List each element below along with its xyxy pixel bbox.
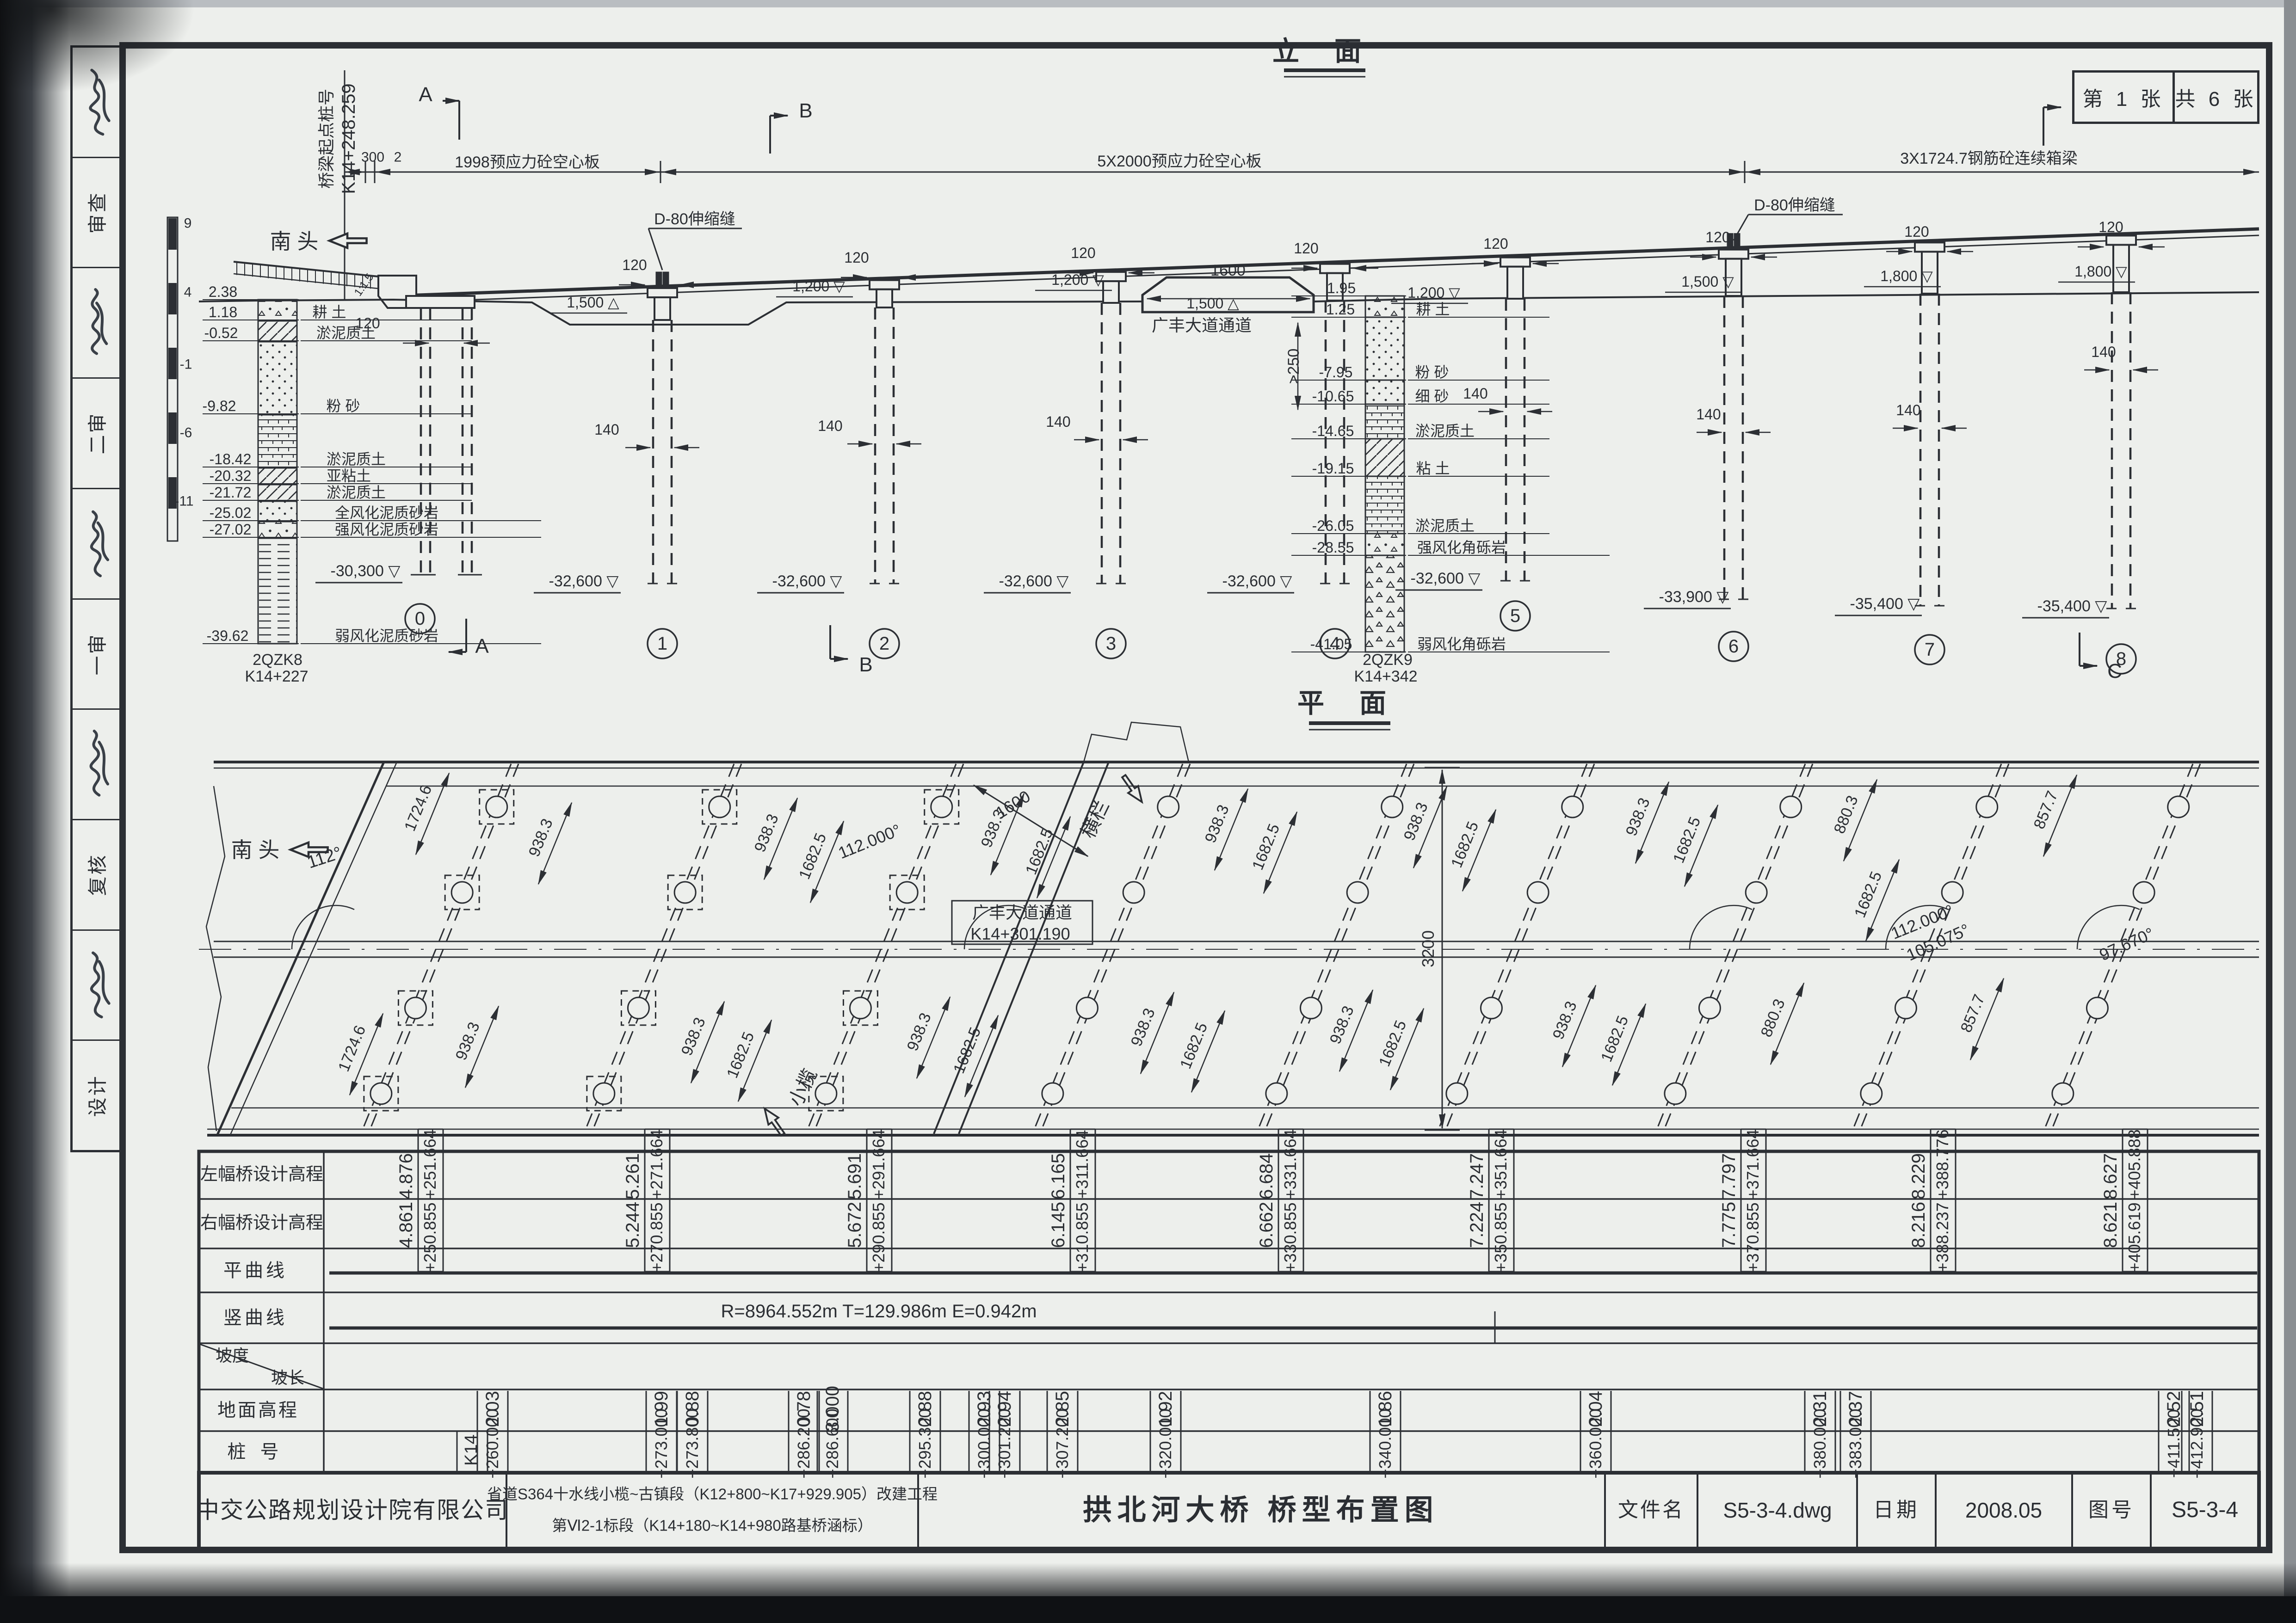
drawing-linework <box>0 0 2296 1623</box>
page-curl-shadow <box>0 0 324 194</box>
sheet-number-box: 第 1 张 <box>2072 70 2175 124</box>
vertical-curve-parameters: R=8964.552m T=129.986m E=0.942m <box>721 1302 1037 1321</box>
label-text: 一审 <box>82 633 111 675</box>
drawing-number-label: 图号 <box>2088 1500 2135 1521</box>
scan-bottom-edge <box>0 1596 2296 1623</box>
signature-scribble <box>77 507 116 581</box>
date-value: 2008.05 <box>1965 1499 2042 1521</box>
file-name-value: S5-3-4.dwg <box>1723 1499 1832 1521</box>
book-spine-shadow <box>0 0 69 1623</box>
signature-scribble <box>77 948 116 1022</box>
signature-scribble <box>77 286 116 360</box>
signature-label-ershen: 二审 <box>73 379 120 489</box>
scan-bottom-shade <box>0 1563 2296 1600</box>
file-name-label: 文件名 <box>1618 1500 1685 1521</box>
signature-label-fuhe: 复核 <box>73 820 120 931</box>
label-text: 复核 <box>82 854 111 896</box>
elevation-view-title: 立 面 <box>1272 38 1375 66</box>
sheet-number: 第 1 张 <box>2083 82 2165 112</box>
table-row-grade-length: 坡长 <box>271 1369 304 1387</box>
table-row-vertical-curve: 竖曲线 <box>223 1308 287 1328</box>
station-prefix: K14 <box>463 1434 481 1466</box>
design-company: 中交公路规划设计院有限公司 <box>196 1498 509 1523</box>
signature-cell <box>73 268 120 379</box>
project-name-line1: 省道S364十水线小榄~古镇段（K12+800~K17+929.905）改建工程 <box>487 1487 938 1503</box>
table-row-grade: 坡度 <box>216 1347 249 1365</box>
project-name-line2: 第Ⅵ2-1标段（K14+180~K14+980路基桥涵标） <box>552 1518 873 1534</box>
label-text: 设计 <box>82 1074 111 1117</box>
scanned-bridge-drawing: 桥梁起点桩号K14+248.25930021998预应力砼空心板5X2000预应… <box>0 0 2296 1623</box>
signature-cell <box>73 710 120 820</box>
sheet-total: 共 6 张 <box>2175 82 2257 112</box>
date-label: 日期 <box>1873 1500 1920 1521</box>
table-row-left-design-elevation: 左幅桥设计高程 <box>200 1166 323 1184</box>
drawing-number-value: S5-3-4 <box>2172 1499 2238 1522</box>
table-row-right-design-elevation: 右幅桥设计高程 <box>200 1214 323 1233</box>
signature-label-yishen: 一审 <box>73 600 120 710</box>
scan-right-edge <box>2284 0 2296 1623</box>
label-text: 审查 <box>82 191 111 234</box>
signature-cell <box>73 931 120 1041</box>
signature-strip: 审查 二审 一审 复核 设计 <box>70 45 123 1152</box>
table-row-stationing: 桩 号 <box>227 1442 283 1462</box>
table-row-horizontal-curve: 平曲线 <box>223 1261 287 1280</box>
sheet-total-box: 共 6 张 <box>2173 70 2259 124</box>
scan-top-edge <box>0 0 2296 7</box>
signature-cell <box>73 489 120 600</box>
table-row-ground-elevation: 地面高程 <box>217 1401 299 1420</box>
signature-label-sheji: 设计 <box>73 1041 120 1150</box>
label-text: 二审 <box>82 412 111 455</box>
drawing-title: 拱北河大桥 桥型布置图 <box>1083 1495 1438 1525</box>
plan-view-title: 平 面 <box>1297 690 1400 718</box>
signature-scribble <box>77 727 116 801</box>
